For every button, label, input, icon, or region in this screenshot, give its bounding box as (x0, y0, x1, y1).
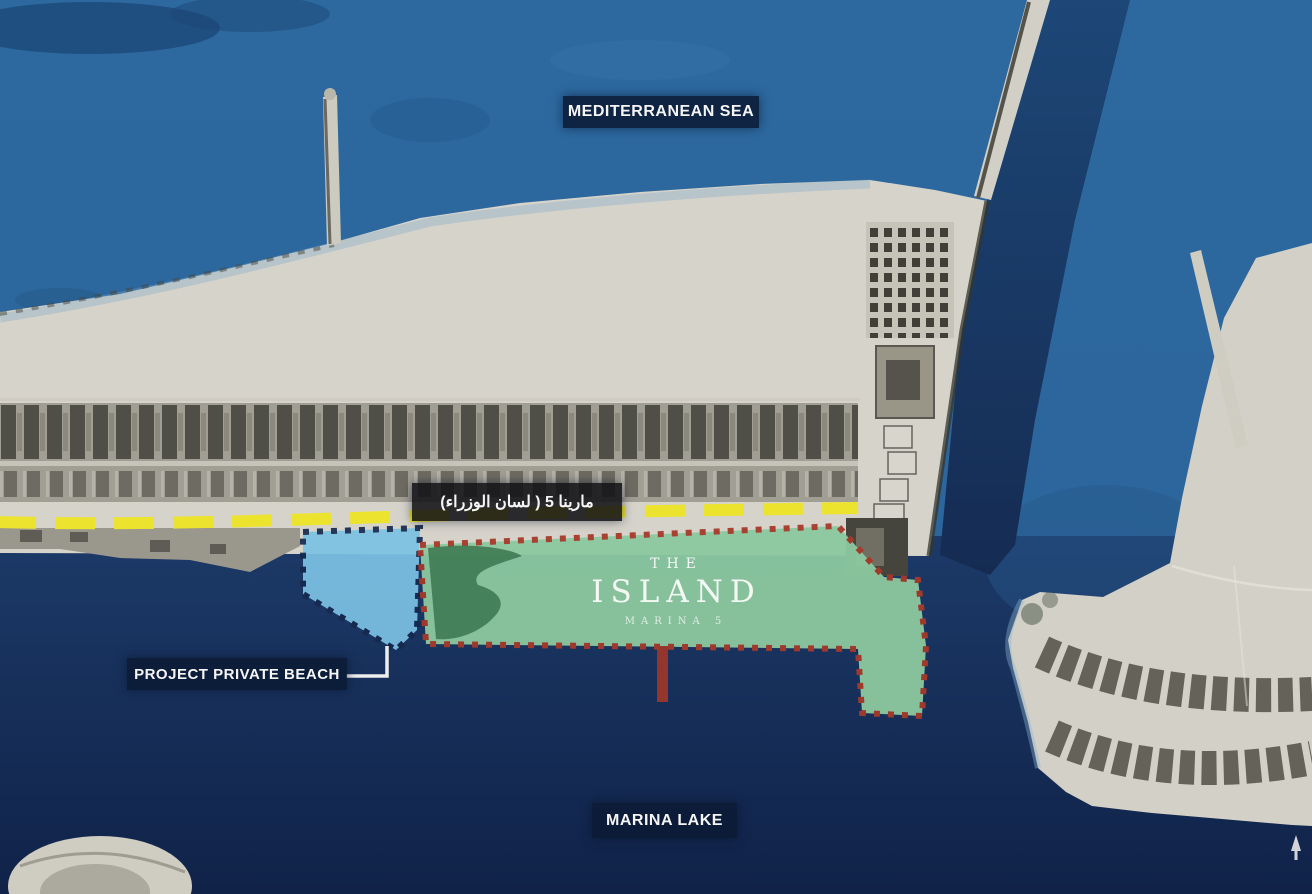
building (884, 426, 912, 448)
private-beach-label: PROJECT PRIVATE BEACH (127, 658, 347, 690)
red-pier-marker (657, 646, 668, 702)
north-arrow-stem (1295, 851, 1298, 860)
dock (70, 532, 88, 542)
marina-boats (866, 222, 954, 338)
project-title-sub: MARINA 5 (537, 616, 809, 627)
project-title-the: THE (537, 556, 809, 572)
project-title-name: ISLAND (537, 574, 809, 610)
dock (20, 530, 42, 542)
map-canvas (0, 0, 1312, 894)
project-title-block: THE ISLAND MARINA 5 (537, 556, 809, 627)
road-arabic-label: مارينا 5 ( لسان الوزراء) (412, 483, 622, 521)
east-island-trees (1042, 592, 1058, 608)
dock (150, 540, 170, 552)
west-pier-head (324, 88, 336, 100)
sea-light-patch (550, 40, 730, 80)
building (888, 452, 916, 474)
east-island-trees (1021, 603, 1043, 625)
building (880, 479, 908, 501)
sea-dark-patch (370, 98, 490, 142)
mediterranean-sea-label: MEDITERRANEAN SEA (563, 96, 759, 128)
marina-lake-label: MARINA LAKE (592, 803, 737, 838)
dock (210, 544, 226, 554)
back-road (0, 398, 860, 401)
satellite-map: MEDITERRANEAN SEA مارينا 5 ( لسان الوزرا… (0, 0, 1312, 894)
clubhouse-court (886, 360, 920, 400)
